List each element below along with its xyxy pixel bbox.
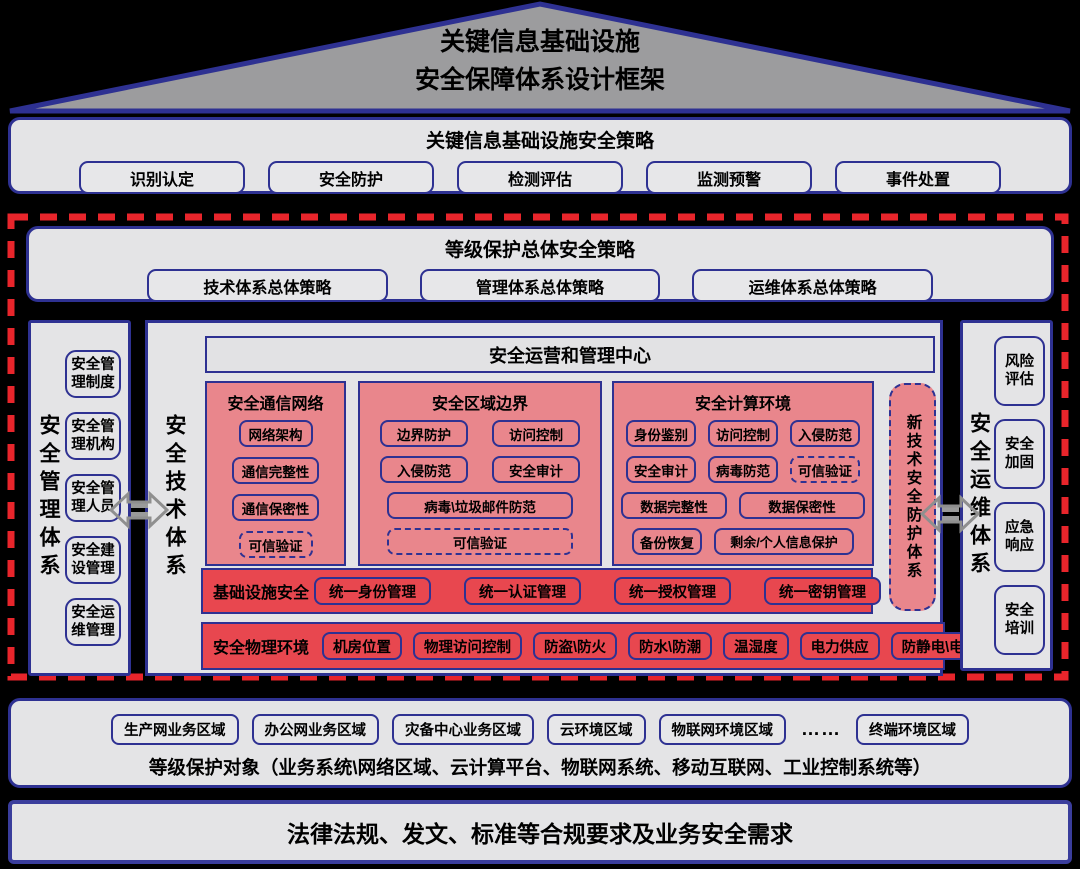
item-unified-key-mgmt: 统一密钥管理 (764, 577, 881, 605)
diagram-title-line1: 关键信息基础设施 (0, 24, 1080, 62)
physical-environment-label: 安全物理环境 (213, 634, 309, 658)
zone-cloud-environment: 云环境区域 (547, 714, 646, 745)
item-server-room-location: 机房位置 (322, 632, 402, 660)
diagram-canvas: { "colors": { "navy_border": "#2e3192", … (0, 0, 1080, 869)
item-data-confidentiality: 数据保密性 (739, 492, 865, 519)
management-item-maintenance: 安全运维管理 (65, 598, 121, 646)
item-security-audit-boundary: 安全审计 (492, 456, 580, 483)
infrastructure-security-row: 基础设施安全 统一身份管理 统一认证管理 统一授权管理 统一密钥管理 (201, 568, 873, 614)
management-system-label: 安全管理体系 (33, 414, 63, 582)
computing-row-1: 身份鉴别 访问控制 入侵防范 (614, 420, 872, 447)
ops-management-center-bar: 安全运营和管理中心 (205, 336, 935, 373)
item-intrusion-prevention-boundary: 入侵防范 (380, 456, 468, 483)
policy-item-identify: 识别认定 (79, 161, 245, 194)
panel-communication-network-items: 网络架构 通信完整性 通信保密性 可信验证 (207, 420, 344, 558)
policy-item-monitor: 监测预警 (646, 161, 812, 194)
strategy-item-mgmt: 管理体系总体策略 (420, 269, 661, 302)
item-network-architecture: 网络架构 (239, 420, 313, 447)
item-access-control-boundary: 访问控制 (492, 420, 580, 447)
computing-row-2: 安全审计 病毒防范 可信验证 (614, 456, 872, 483)
boundary-row-3: 病毒\垃圾邮件防范 (360, 492, 600, 519)
infrastructure-security-label: 基础设施安全 (213, 579, 309, 603)
double-arrow-icon-right (920, 493, 980, 535)
zone-production-network: 生产网业务区域 (111, 714, 239, 745)
panel-communication-network: 安全通信网络 网络架构 通信完整性 通信保密性 可信验证 (205, 381, 346, 566)
double-arrow-icon-left (109, 489, 169, 531)
management-item-policies: 安全管理制度 (65, 350, 121, 398)
protection-targets-caption: 等级保护对象（业务系统\网络区域、云计算平台、物联网系统、移动互联网、工业控制系… (11, 754, 1069, 780)
item-temperature-humidity: 温湿度 (723, 632, 789, 660)
item-anti-theft-fire: 防盗\防火 (533, 632, 617, 660)
computing-row-4: 备份恢复 剩余/个人信息保护 (614, 528, 872, 555)
item-backup-recovery: 备份恢复 (632, 528, 702, 555)
strategy-item-tech: 技术体系总体策略 (147, 269, 388, 302)
panel-communication-network-title: 安全通信网络 (207, 390, 344, 414)
item-waterproof-moistureproof: 防水\防潮 (628, 632, 712, 660)
item-trusted-verification-2: 可信验证 (387, 528, 573, 555)
compliance-requirements-section: 法律法规、发文、标准等合规要求及业务安全需求 (8, 800, 1072, 864)
management-item-org: 安全管理机构 (65, 412, 121, 460)
item-trusted-verification-1: 可信验证 (239, 531, 313, 558)
item-power-supply: 电力供应 (800, 632, 880, 660)
panel-area-boundary-title: 安全区域边界 (360, 390, 600, 414)
strategy-section: 等级保护总体安全策略 技术体系总体策略 管理体系总体策略 运维体系总体策略 (26, 226, 1054, 302)
operations-items: 风险评估 安全加固 应急响应 安全培训 (994, 323, 1050, 668)
management-item-construction: 安全建设管理 (65, 536, 121, 584)
zone-disaster-recovery-center: 灾备中心业务区域 (392, 714, 534, 745)
item-virus-spam-prevention: 病毒\垃圾邮件防范 (387, 492, 573, 519)
zone-office-network: 办公网业务区域 (252, 714, 380, 745)
item-residual-personal-info-protection: 剩余/个人信息保护 (714, 528, 854, 555)
item-comm-confidentiality: 通信保密性 (232, 494, 320, 521)
computing-row-3: 数据完整性 数据保密性 (614, 492, 872, 519)
zone-ellipsis: …… (799, 719, 843, 741)
boundary-row-2: 入侵防范 安全审计 (360, 456, 600, 483)
item-unified-authorization-mgmt: 统一授权管理 (614, 577, 731, 605)
strategy-item-row: 技术体系总体策略 管理体系总体策略 运维体系总体策略 (29, 269, 1051, 302)
technical-system-area: 安全技术体系 安全运营和管理中心 安全通信网络 网络架构 通信完整性 通信保密性… (145, 320, 943, 676)
management-system-label-cell: 安全管理体系 (31, 323, 65, 673)
policy-item-incident: 事件处置 (835, 161, 1001, 194)
diagram-title-line2: 安全保障体系设计框架 (0, 62, 1080, 100)
item-data-integrity: 数据完整性 (621, 492, 727, 519)
item-unified-authentication-mgmt: 统一认证管理 (464, 577, 581, 605)
panel-area-boundary: 安全区域边界 边界防护 访问控制 入侵防范 安全审计 病毒\垃圾邮件防范 可信验… (358, 381, 602, 566)
operations-item-emergency-response: 应急响应 (994, 502, 1045, 572)
item-identity-authentication: 身份鉴别 (626, 420, 696, 447)
zone-row: 生产网业务区域 办公网业务区域 灾备中心业务区域 云环境区域 物联网环境区域 …… (11, 714, 1069, 745)
operations-item-hardening: 安全加固 (994, 419, 1045, 489)
item-virus-prevention: 病毒防范 (708, 456, 778, 483)
diagram-title: 关键信息基础设施 安全保障体系设计框架 (0, 24, 1080, 99)
zone-iot-environment: 物联网环境区域 (659, 714, 787, 745)
policy-section: 关键信息基础设施安全策略 识别认定 安全防护 检测评估 监测预警 事件处置 (8, 117, 1072, 194)
strategy-item-ops: 运维体系总体策略 (692, 269, 933, 302)
policy-item-protect: 安全防护 (268, 161, 434, 194)
boundary-row-1: 边界防护 访问控制 (360, 420, 600, 447)
panel-computing-environment-title: 安全计算环境 (614, 390, 872, 414)
physical-environment-row: 安全物理环境 机房位置 物理访问控制 防盗\防火 防水\防潮 温湿度 电力供应 … (201, 622, 945, 670)
boundary-row-4: 可信验证 (360, 528, 600, 555)
policy-section-title: 关键信息基础设施安全策略 (11, 120, 1069, 153)
zone-terminal-environment: 终端环境区域 (856, 714, 969, 745)
item-trusted-verification-3: 可信验证 (790, 456, 860, 483)
item-comm-integrity: 通信完整性 (232, 457, 320, 484)
policy-item-assess: 检测评估 (457, 161, 623, 194)
policy-item-row: 识别认定 安全防护 检测评估 监测预警 事件处置 (11, 161, 1069, 194)
protection-targets-section: 生产网业务区域 办公网业务区域 灾备中心业务区域 云环境区域 物联网环境区域 …… (8, 698, 1072, 788)
item-boundary-protection: 边界防护 (380, 420, 468, 447)
item-security-audit-computing: 安全审计 (626, 456, 696, 483)
panel-computing-environment: 安全计算环境 身份鉴别 访问控制 入侵防范 安全审计 病毒防范 可信验证 数据完… (612, 381, 874, 566)
item-access-control-computing: 访问控制 (708, 420, 778, 447)
item-intrusion-prevention-computing: 入侵防范 (790, 420, 860, 447)
strategy-section-title: 等级保护总体安全策略 (29, 229, 1051, 262)
item-physical-access-control: 物理访问控制 (413, 632, 522, 660)
item-unified-identity-mgmt: 统一身份管理 (314, 577, 431, 605)
compliance-requirements-text: 法律法规、发文、标准等合规要求及业务安全需求 (287, 815, 793, 849)
operations-item-risk-assessment: 风险评估 (994, 336, 1045, 406)
operations-item-training: 安全培训 (994, 585, 1045, 655)
